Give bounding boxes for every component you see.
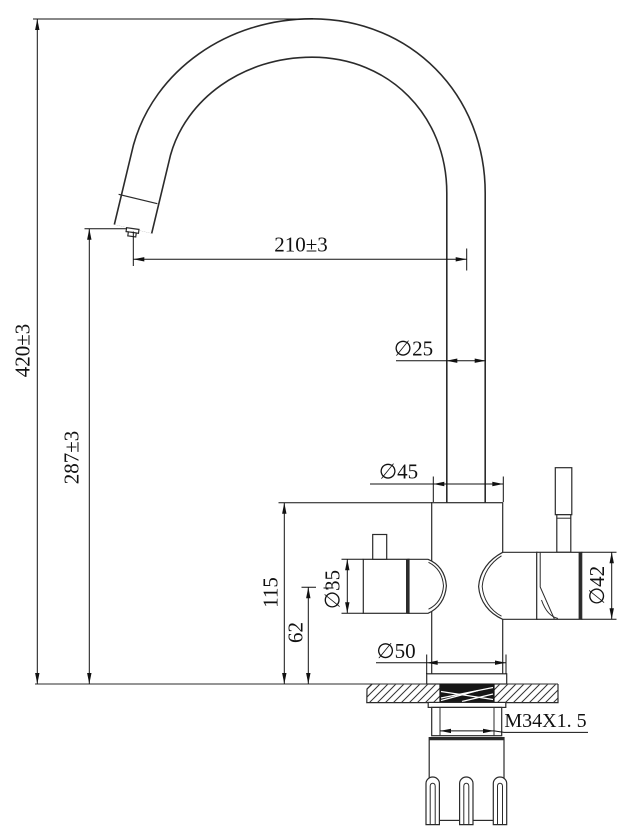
dim-label-total-height: 420±3 bbox=[10, 324, 34, 378]
dim-label-mounting-thread: M34X1. 5 bbox=[504, 710, 586, 732]
left-handle-body bbox=[363, 559, 409, 613]
dimension-labels: 420±3 287±3 210±3 ∅25 ∅45 ∅35 ∅42 ∅50 11… bbox=[10, 232, 609, 732]
dimension-arrows bbox=[35, 19, 614, 733]
drawing-svg: 420±3 287±3 210±3 ∅25 ∅45 ∅35 ∅42 ∅50 11… bbox=[0, 0, 633, 840]
dim-label-base-diameter: ∅50 bbox=[376, 639, 415, 663]
right-handle-body bbox=[537, 552, 582, 619]
spout-tube-fill bbox=[133, 38, 466, 504]
dim-label-body-shoulder-height: 115 bbox=[258, 577, 282, 608]
dim-label-valve-axis-height: 62 bbox=[283, 622, 307, 643]
mounting-nut-ribs bbox=[426, 777, 507, 825]
counter-hatch-right bbox=[494, 685, 557, 703]
right-handle-lever-stem bbox=[557, 515, 571, 553]
aerator bbox=[126, 228, 139, 238]
dimension-lines bbox=[37, 19, 611, 732]
base-flange bbox=[427, 674, 507, 684]
dim-label-right-handle-diameter: ∅42 bbox=[585, 566, 609, 605]
dim-label-outlet-height: 287±3 bbox=[59, 431, 83, 485]
dim-label-spout-reach: 210±3 bbox=[274, 232, 328, 256]
counter-hatch-left bbox=[367, 685, 440, 703]
dim-label-body-diameter: ∅45 bbox=[379, 459, 418, 483]
locknut-washer bbox=[428, 702, 506, 707]
faucet-geometry bbox=[35, 38, 582, 825]
dim-label-left-handle-diameter: ∅35 bbox=[320, 570, 344, 609]
right-handle-grip bbox=[555, 468, 572, 515]
dimension-annotations: 420±3 287±3 210±3 ∅25 ∅45 ∅35 ∅42 ∅50 11… bbox=[10, 19, 616, 733]
left-handle-lever bbox=[373, 535, 387, 560]
faucet-technical-drawing: 420±3 287±3 210±3 ∅25 ∅45 ∅35 ∅42 ∅50 11… bbox=[0, 0, 633, 840]
dim-label-tube-diameter: ∅25 bbox=[394, 336, 433, 360]
